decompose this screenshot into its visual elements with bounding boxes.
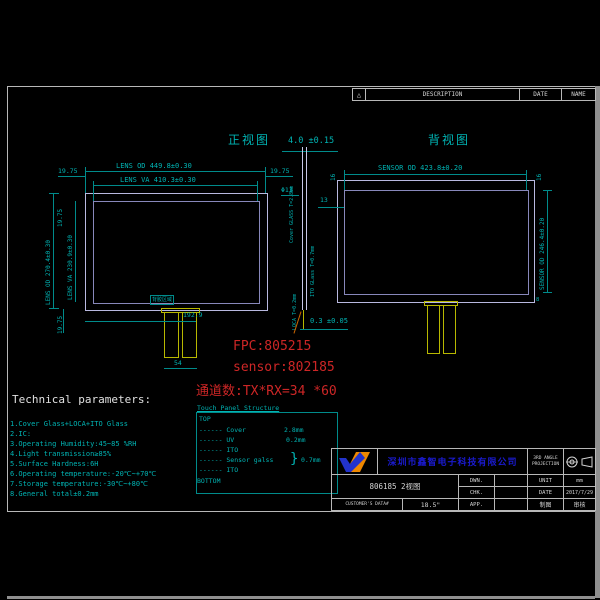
front-view-va-outline: [93, 201, 260, 304]
tech-param-5: 5.Surface Hardness:6H: [10, 460, 99, 468]
chk-label: CHK.: [470, 490, 483, 496]
side-label-cover: Cover GLASS T=2.8mm: [288, 186, 296, 243]
canvas-edge-bottom: [7, 596, 595, 599]
tech-param-3: 3.Operating Humidity:45~85 %RH: [10, 440, 136, 448]
tech-param-1: 1.Cover Glass+LOCA+ITO Glass: [10, 420, 128, 428]
structure-table-title: Touch Panel Structure: [197, 404, 279, 412]
canvas-edge-right: [595, 86, 600, 598]
date-label-tb: DATE: [539, 490, 552, 496]
dim-total-thickness: 4.0 ±0.15: [288, 137, 334, 145]
name-label: NAME: [571, 91, 585, 98]
dim-sensor-od-height: SENSOR OD 246.4±0.20: [539, 218, 547, 290]
tech-param-4: 4.Light transmission≥85%: [10, 450, 111, 458]
projection-symbol-cell: [563, 448, 596, 475]
cell-b: 审核: [563, 498, 596, 511]
dwn-label: DWN.: [470, 478, 483, 484]
revision-description-header: DESCRIPTION: [365, 88, 520, 101]
app-label-cell: APP.: [458, 498, 495, 511]
structure-row-ito-bottom: ------ ITO: [199, 467, 238, 474]
unit-value: mm: [576, 478, 583, 484]
date-value: 2017/7/29: [566, 490, 593, 496]
size-value-cell: 18.5": [402, 498, 459, 511]
cell-a: 制图: [527, 498, 564, 511]
cell-a-label: 制图: [539, 500, 551, 509]
revision-triangle-icon: △: [357, 91, 361, 99]
tech-param-8: 8.General total±0.2mm: [10, 490, 99, 498]
dim-margin-top-left: 19.75: [58, 167, 78, 175]
annotation-sensor-number: sensor:802185: [233, 360, 335, 375]
dim-lens-od-height: LENS OD 270.4±0.30: [45, 240, 53, 305]
side-view-glass-left: [302, 147, 303, 310]
annotation-fpc-number: FPC:805215: [233, 339, 311, 354]
unit-label: UNIT: [539, 478, 552, 484]
rear-view-title: 背视图: [428, 136, 470, 144]
structure-value-sensor: 0.7mm: [301, 457, 321, 464]
projection-line2: PROJECTION: [532, 462, 559, 468]
dim-offset-13: 13: [320, 196, 328, 204]
structure-row-ito-top: ------ ITO: [199, 447, 238, 454]
company-name-cell: 深圳市鑫智电子科技有限公司: [377, 448, 528, 475]
front-fpc-prong-left: [164, 312, 179, 358]
projection-text-cell: 3RD ANGLE PROJECTION: [527, 448, 564, 475]
structure-bottom-label: BOTTOM: [197, 478, 220, 485]
dim-sensor-od-width: SENSOR OD 423.8±0.20: [378, 164, 462, 172]
tech-param-2: 2.IC:: [10, 430, 31, 438]
dim-margin-top-right: 19.75: [270, 167, 290, 175]
app-label: APP.: [470, 502, 483, 508]
drawing-title-cell: 806185 2视图: [331, 474, 459, 499]
dim-lens-va-height: LENS VA 230.9±0.30: [67, 235, 75, 300]
dim-offset-8: 8: [536, 296, 539, 304]
dim-fpc-width: 54: [174, 359, 182, 367]
tech-param-7: 7.Storage temperature:-30℃~+80℃: [10, 480, 148, 488]
tech-params-title: Technical parameters:: [12, 396, 151, 404]
company-logo-icon: [336, 451, 374, 473]
dim-margin-top-vertical: 19.75: [57, 209, 65, 227]
rear-fpc-prong-right: [443, 305, 456, 354]
dim-lens-va-width: LENS VA 410.3±0.30: [120, 176, 196, 184]
app-value-cell: [494, 498, 528, 511]
front-view-title: 正视图: [228, 136, 270, 144]
structure-top-label: TOP: [199, 416, 211, 423]
structure-row-uv: ------ UV: [199, 437, 234, 444]
side-fpc-tail: [303, 310, 304, 330]
adhesive-area-label: 背胶区域: [150, 295, 174, 305]
dim-margin-16-left: 16: [330, 174, 338, 181]
description-label: DESCRIPTION: [423, 91, 463, 98]
dim-margin-16-right: 16: [536, 174, 544, 181]
tech-param-6: 6.Operating temperature:-20℃~+70℃: [10, 470, 156, 478]
structure-brace: }: [290, 450, 298, 468]
structure-row-cover: ------ Cover: [199, 427, 246, 434]
structure-value-cover: 2.8mm: [284, 427, 304, 434]
cell-b-label: 审核: [573, 500, 585, 509]
revision-name-header: NAME: [561, 88, 596, 101]
revision-date-header: DATE: [519, 88, 562, 101]
rear-view-sensor-outline: [344, 190, 529, 295]
structure-row-sensor: ------ Sensor galss: [199, 457, 273, 464]
date-label: DATE: [533, 91, 547, 98]
customer-label: CUSTOMER'S DATA#: [345, 502, 388, 507]
third-angle-projection-icon: [566, 455, 594, 469]
revision-marker-cell: △: [352, 88, 366, 101]
company-name: 深圳市鑫智电子科技有限公司: [387, 455, 517, 468]
rear-fpc-prong-left: [427, 305, 440, 354]
annotation-channels: 通道数:TX*RX=34 *60: [196, 384, 337, 399]
drawing-title: 806185 2视图: [369, 481, 420, 492]
logo-cell: [331, 448, 378, 475]
size-value: 18.5": [421, 501, 441, 509]
structure-value-uv: 0.2mm: [286, 437, 306, 444]
dim-fpc-offset: 192.9: [183, 311, 203, 319]
dim-lens-od-width: LENS OD 449.8±0.30: [116, 162, 192, 170]
side-view-glass-right: [306, 147, 307, 310]
side-label-ito: ITO GLass T=0.7mm: [309, 246, 317, 297]
dim-bottom-gap: 0.3 ±0.05: [310, 317, 348, 325]
customer-label-cell: CUSTOMER'S DATA#: [331, 498, 403, 511]
